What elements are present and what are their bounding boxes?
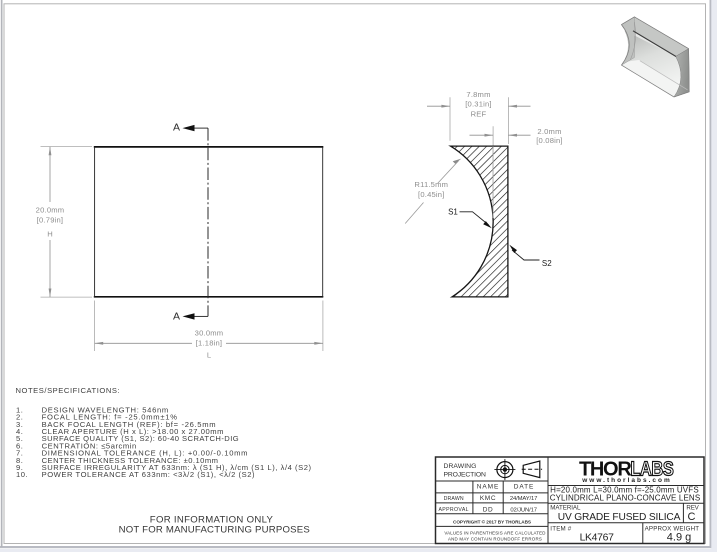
svg-text:MATERIAL: MATERIAL	[550, 504, 581, 511]
svg-text:REF: REF	[471, 109, 487, 118]
svg-text:LK4767: LK4767	[580, 532, 615, 543]
svg-text:R11.5mm: R11.5mm	[414, 180, 448, 189]
svg-text:20.0mm: 20.0mm	[36, 205, 65, 214]
svg-text:PROJECTION: PROJECTION	[444, 472, 487, 479]
svg-text:DD: DD	[483, 506, 494, 513]
svg-text:DRAWN: DRAWN	[444, 496, 464, 502]
svg-text:DRAWING: DRAWING	[444, 463, 477, 470]
svg-text:2.0mm: 2.0mm	[537, 127, 561, 136]
svg-text:S2: S2	[542, 259, 552, 268]
svg-text:L: L	[207, 351, 211, 360]
svg-text:COPYRIGHT © 2017 BY THORLABS: COPYRIGHT © 2017 BY THORLABS	[453, 518, 531, 524]
svg-text:[0.08in]: [0.08in]	[536, 136, 563, 145]
svg-text:DATE: DATE	[514, 484, 534, 491]
svg-text:A: A	[173, 121, 180, 133]
svg-text:POWER TOLERANCE AT 633nm: <3λ/: POWER TOLERANCE AT 633nm: <3λ/2 (S1), <λ…	[42, 470, 256, 479]
svg-text:A: A	[173, 311, 180, 323]
svg-text:[1.18in]: [1.18in]	[196, 339, 223, 348]
svg-text:CYLINDRICAL PLANO-CONCAVE LENS: CYLINDRICAL PLANO-CONCAVE LENS	[550, 494, 701, 503]
svg-text:AND MAY CONTAIN ROUNDOFF ERROR: AND MAY CONTAIN ROUNDOFF ERRORS	[448, 536, 542, 541]
svg-text:24/MAY/17: 24/MAY/17	[510, 496, 537, 502]
svg-text:APPROVAL: APPROVAL	[439, 507, 469, 513]
svg-text:KMC: KMC	[480, 495, 496, 502]
svg-text:4.9 g: 4.9 g	[667, 531, 691, 543]
svg-text:7.8mm: 7.8mm	[466, 90, 490, 99]
svg-text:VALUES IN PARENTHESIS ARE CALC: VALUES IN PARENTHESIS ARE CALCULATED	[444, 531, 545, 536]
svg-text:NAME: NAME	[477, 484, 499, 491]
svg-text:H: H	[47, 229, 52, 238]
svg-text:[0.45in]: [0.45in]	[418, 190, 445, 199]
svg-text:UV GRADE FUSED SILICA: UV GRADE FUSED SILICA	[558, 512, 681, 523]
svg-text:[0.31in]: [0.31in]	[465, 100, 492, 109]
svg-text:C: C	[688, 511, 696, 523]
svg-text:NOT FOR MANUFACTURING PURPOSES: NOT FOR MANUFACTURING PURPOSES	[119, 525, 310, 536]
svg-text:10.: 10.	[16, 470, 28, 479]
svg-text:[0.79in]: [0.79in]	[37, 215, 64, 224]
svg-text:02/JUN/17: 02/JUN/17	[510, 507, 536, 513]
svg-text:30.0mm: 30.0mm	[195, 329, 224, 338]
svg-text:NOTES/SPECIFICATIONS:: NOTES/SPECIFICATIONS:	[16, 386, 121, 395]
svg-text:ITEM #: ITEM #	[550, 525, 571, 532]
svg-text:S1: S1	[448, 208, 458, 217]
svg-text:www.thorlabs.com: www.thorlabs.com	[581, 477, 672, 484]
